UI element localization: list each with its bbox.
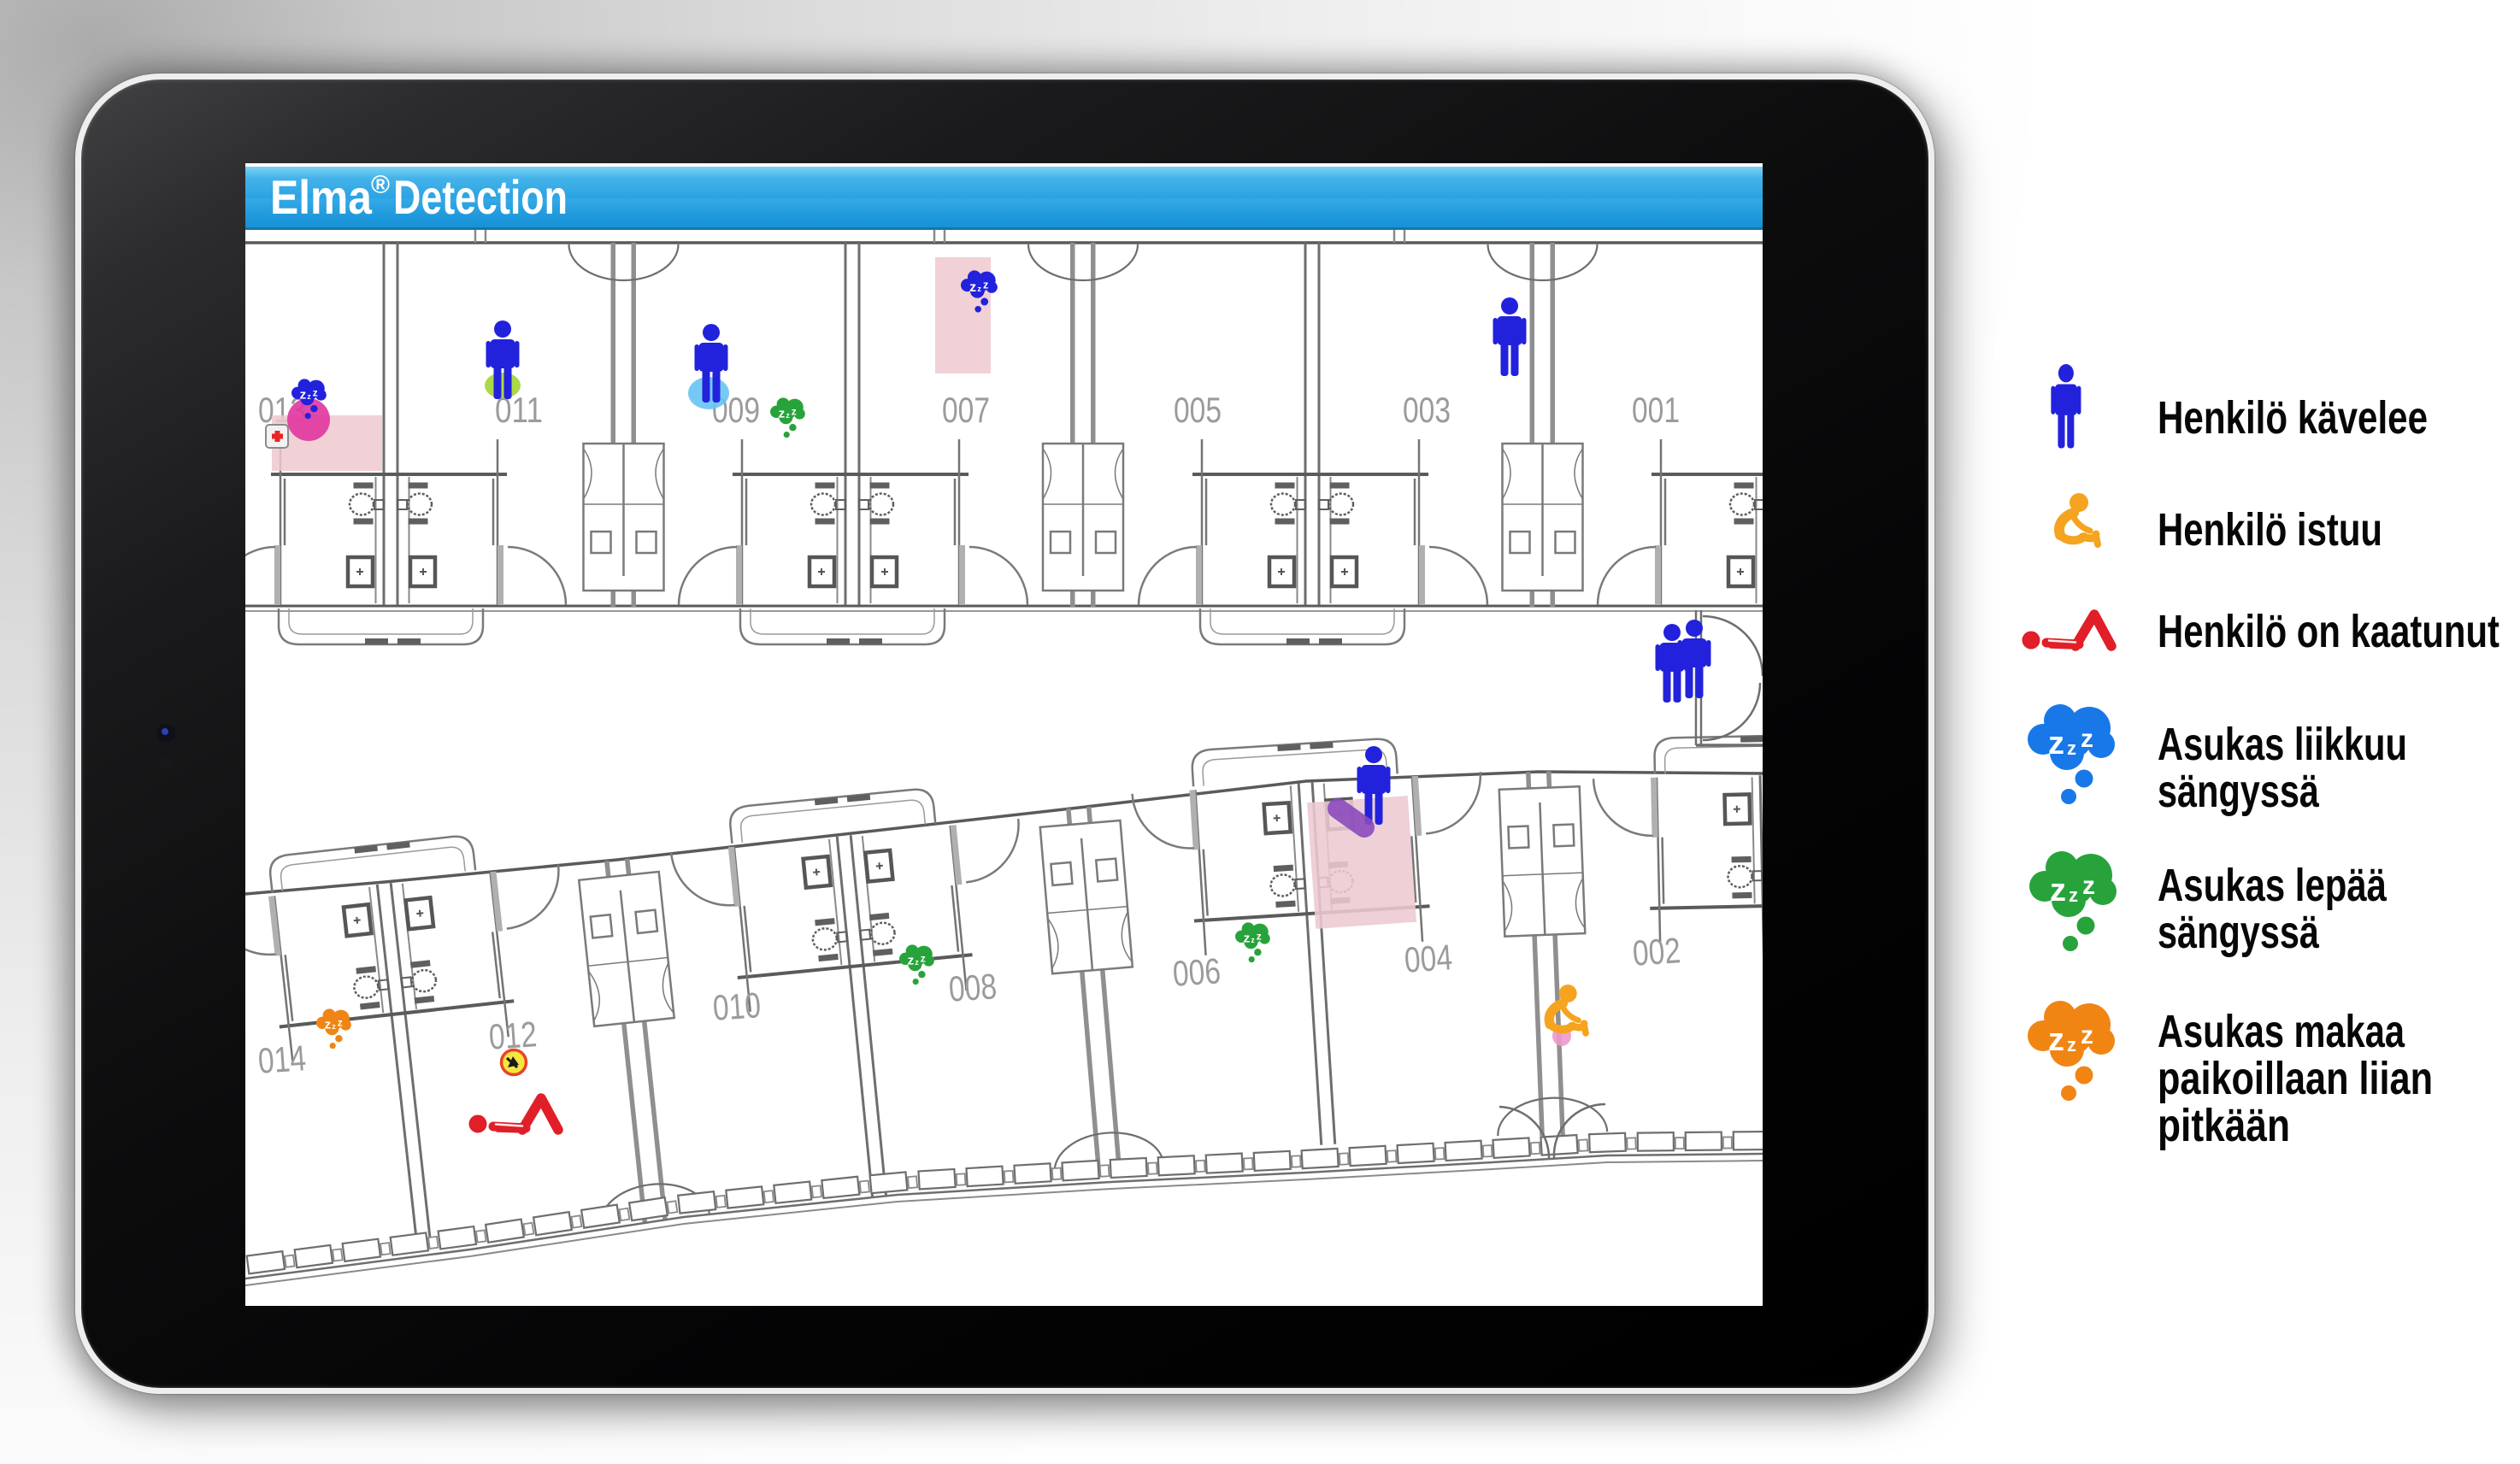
svg-text:007: 007 [942,390,990,430]
svg-text:Henkilö istuu: Henkilö istuu [2158,504,2382,556]
svg-text:001: 001 [1632,390,1680,430]
svg-text:005: 005 [1174,390,1222,430]
svg-text:014: 014 [256,1038,307,1081]
svg-text:Henkilö on kaatunut: Henkilö on kaatunut [2158,606,2499,657]
svg-text:002: 002 [1631,930,1681,973]
svg-text:Asukas liikkuu: Asukas liikkuu [2158,719,2407,770]
svg-text:Asukas makaa: Asukas makaa [2158,1006,2405,1057]
svg-text:paikoillaan liian: paikoillaan liian [2158,1053,2433,1104]
svg-text:Asukas lepää: Asukas lepää [2158,860,2388,911]
svg-text:008: 008 [947,966,998,1009]
svg-text:®: ® [371,171,390,199]
svg-text:Elma: Elma [270,170,373,224]
svg-text:pitkään: pitkään [2158,1100,2290,1151]
svg-text:003: 003 [1403,390,1451,430]
svg-text:Detection: Detection [393,170,568,224]
svg-text:Henkilö kävelee: Henkilö kävelee [2158,392,2428,444]
svg-text:004: 004 [1403,937,1453,980]
svg-text:006: 006 [1171,950,1222,994]
svg-text:010: 010 [711,985,762,1028]
svg-text:sängyssä: sängyssä [2158,907,2320,958]
svg-text:sängyssä: sängyssä [2158,766,2320,817]
